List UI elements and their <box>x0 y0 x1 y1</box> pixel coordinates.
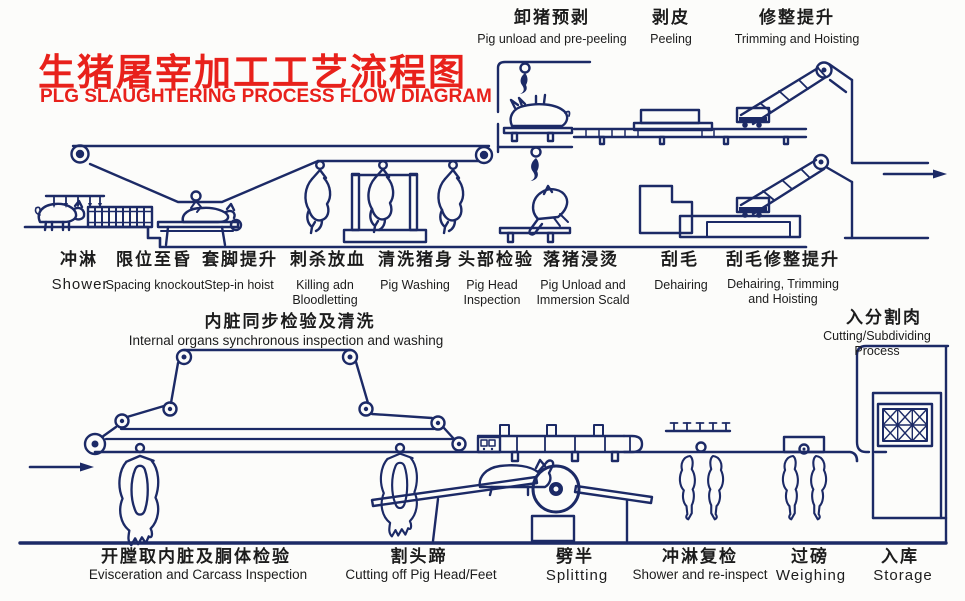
flow-arrow-right-icon <box>884 170 947 179</box>
label-weighing-en: Weighing <box>776 567 846 585</box>
overhead-rail-1 <box>72 146 493 203</box>
label-dehairing-en: Dehairing <box>654 278 708 293</box>
label-pig-washing-zh: 清洗猪身 <box>378 250 454 270</box>
shower-reinspect-icon <box>666 423 730 519</box>
label-immersion-scald-zh: 落猪浸烫 <box>543 250 619 270</box>
label-head-inspection-en: Pig Head Inspection <box>464 278 521 308</box>
label-subdividing-en: Cutting/Subdividing Process <box>823 329 931 359</box>
label-trimming-hoisting-en: Trimming and Hoisting <box>735 32 860 47</box>
peeling-machine-icon <box>641 110 699 123</box>
label-step-in-hoist-en: Step-in hoist <box>204 278 273 293</box>
peeling-conveyor-icon <box>574 110 806 144</box>
restrainer-icon <box>88 207 152 227</box>
label-shower-en: Shower <box>52 276 109 294</box>
label-splitting-en: Splitting <box>546 567 608 585</box>
label-unload-prepeel-en: Pig unload and pre-peeling <box>477 32 626 47</box>
splitting-station-icon <box>372 425 652 541</box>
label-bloodletting-zh: 刺杀放血 <box>290 250 366 270</box>
label-cut-head-feet-zh: 割头蹄 <box>391 547 448 567</box>
label-subdividing-zh: 入分割肉 <box>846 308 922 328</box>
label-knockout-zh: 限位至昏 <box>116 250 192 270</box>
label-storage-en: Storage <box>873 567 933 585</box>
label-bloodletting-en: Killing adn Bloodletting <box>292 278 357 308</box>
label-immersion-scald-en: Pig Unload and Immersion Scald <box>536 278 629 308</box>
label-organ-inspection-en: Internal organs synchronous inspection a… <box>129 333 443 349</box>
head-inspection-pig-icon <box>438 161 463 233</box>
label-knockout-en: Spacing knockout <box>106 278 205 293</box>
shackle-hook-icon <box>192 192 201 201</box>
bloodletting-pig-icon <box>305 161 330 233</box>
label-unload-prepeel-zh: 卸猪预剥 <box>514 8 590 28</box>
storage-room-icon <box>873 347 946 543</box>
carcass-rail <box>95 452 886 461</box>
flow-diagram-page: 生猪屠宰加工工艺流程图 PLG SLAUGHTERING PROCESS FLO… <box>0 0 965 601</box>
label-shower-reinspect-en: Shower and re-inspect <box>632 567 767 583</box>
label-dehair-trim-hoist-en: Dehairing, Trimming and Hoisting <box>727 277 839 307</box>
weighing-station-icon <box>783 437 826 519</box>
upper-elevator-icon <box>737 63 928 164</box>
label-trimming-hoisting-zh: 修整提升 <box>759 8 835 28</box>
label-evisceration-zh: 开膛取内脏及胴体检验 <box>101 547 291 567</box>
label-peeling-en: Peeling <box>650 32 692 47</box>
scald-tank-icon <box>640 186 692 233</box>
label-peeling-zh: 剥皮 <box>652 8 690 28</box>
label-head-inspection-zh: 头部检验 <box>458 250 534 270</box>
label-step-in-hoist-zh: 套脚提升 <box>202 250 278 270</box>
label-shower-reinspect-zh: 冲淋复检 <box>662 547 738 567</box>
shower-station-icon <box>36 196 105 230</box>
label-organ-inspection-zh: 内脏同步检验及清洗 <box>205 312 376 332</box>
evisceration-carcass-icon <box>119 444 158 545</box>
pig-on-back-icon <box>511 95 570 126</box>
page-subtitle: PLG SLAUGHTERING PROCESS FLOW DIAGRAM <box>40 86 492 108</box>
lower-elevator-icon <box>737 155 928 238</box>
flow-arrow-left-icon <box>30 463 94 472</box>
pig-on-table-icon <box>183 208 228 222</box>
head-feet-cutting-carcass-icon <box>381 444 417 536</box>
label-evisceration-en: Evisceration and Carcass Inspection <box>89 567 307 583</box>
label-dehairing-zh: 刮毛 <box>661 250 699 270</box>
saw-table-icon <box>372 477 537 506</box>
label-dehair-trim-hoist-zh: 刮毛修整提升 <box>726 250 840 270</box>
pig-walking-icon <box>36 201 85 230</box>
dehairing-table-icon <box>680 216 800 237</box>
label-storage-zh: 入库 <box>881 547 919 567</box>
label-weighing-zh: 过磅 <box>791 547 829 567</box>
label-splitting-zh: 劈半 <box>556 547 594 567</box>
label-pig-washing-en: Pig Washing <box>380 278 450 293</box>
label-shower-zh: 冲淋 <box>60 250 98 270</box>
label-cut-head-feet-en: Cutting off Pig Head/Feet <box>345 567 496 583</box>
unload-prepeel-icon <box>498 62 590 181</box>
inspection-conveyor-loop-icon <box>85 350 466 454</box>
washing-cabinet-icon <box>344 161 426 242</box>
